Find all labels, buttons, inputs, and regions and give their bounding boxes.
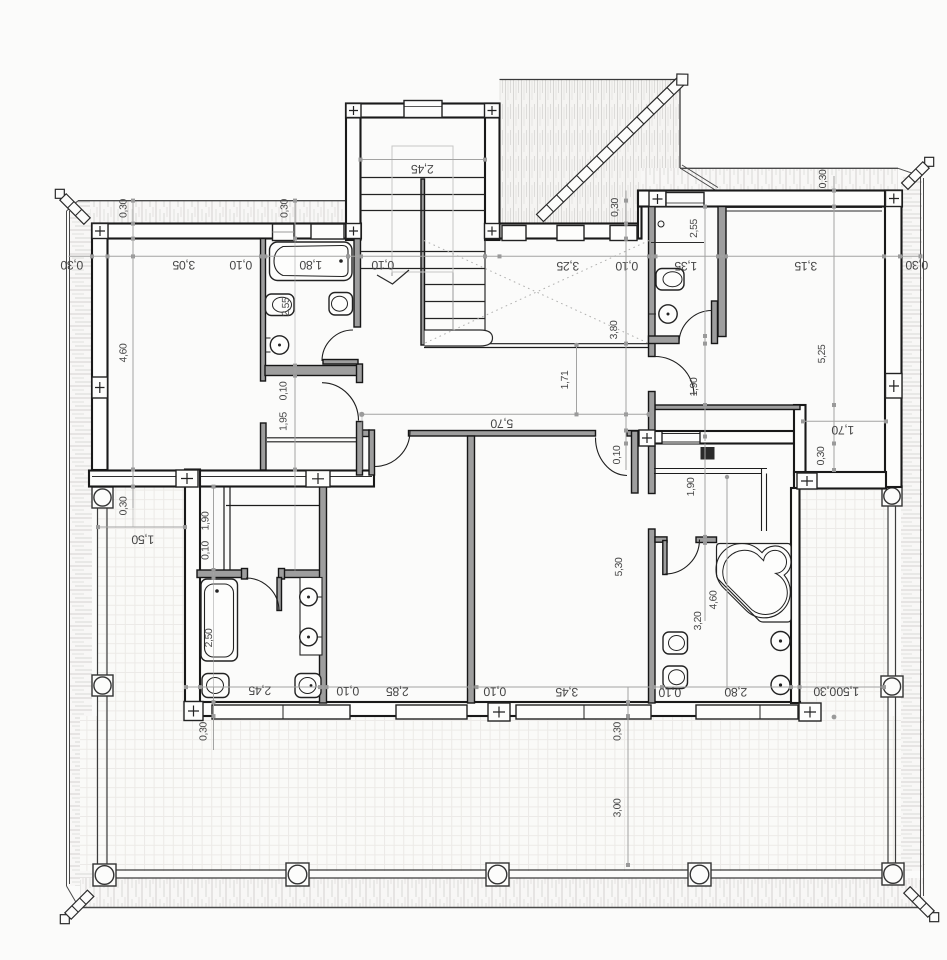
svg-text:3,80: 3,80	[609, 320, 620, 339]
svg-text:3,15: 3,15	[794, 259, 817, 273]
svg-text:2,55: 2,55	[281, 297, 292, 316]
svg-text:0,30: 0,30	[199, 722, 210, 741]
svg-text:1,80: 1,80	[299, 258, 322, 272]
svg-text:0,30: 0,30	[905, 258, 928, 272]
svg-text:5,70: 5,70	[490, 417, 513, 431]
svg-text:3,20: 3,20	[693, 611, 704, 630]
svg-text:3,05: 3,05	[172, 258, 195, 272]
svg-text:0,10: 0,10	[279, 381, 290, 400]
svg-text:0,30: 0,30	[816, 446, 827, 465]
svg-text:1,35: 1,35	[674, 259, 697, 273]
svg-text:2,55: 2,55	[689, 219, 700, 238]
svg-text:0,10: 0,10	[483, 685, 506, 699]
svg-text:1,50: 1,50	[131, 533, 154, 547]
svg-text:0,30: 0,30	[818, 169, 829, 188]
svg-text:1,50: 1,50	[836, 685, 859, 699]
svg-text:5,25: 5,25	[817, 344, 828, 363]
svg-text:1,90: 1,90	[201, 511, 212, 530]
svg-text:0,30: 0,30	[280, 199, 291, 218]
svg-text:0,10: 0,10	[371, 258, 394, 272]
svg-text:0,10: 0,10	[229, 258, 252, 272]
svg-text:2,45: 2,45	[411, 162, 434, 176]
svg-text:0,30: 0,30	[613, 722, 624, 741]
svg-text:3,00: 3,00	[613, 798, 624, 817]
svg-text:0,10: 0,10	[658, 686, 681, 700]
svg-text:1,71: 1,71	[560, 370, 571, 389]
svg-text:1,90: 1,90	[686, 477, 697, 496]
svg-text:0,10: 0,10	[336, 684, 359, 698]
svg-text:5,30: 5,30	[614, 557, 625, 576]
svg-text:3,45: 3,45	[555, 685, 578, 699]
svg-text:4,60: 4,60	[709, 590, 720, 609]
svg-text:0,30: 0,30	[610, 198, 621, 217]
svg-text:1,70: 1,70	[831, 423, 854, 437]
svg-text:0,10: 0,10	[201, 541, 212, 560]
svg-text:4,60: 4,60	[119, 343, 130, 362]
svg-text:2,45: 2,45	[248, 684, 271, 698]
svg-text:0,30: 0,30	[119, 496, 130, 515]
svg-text:0,10: 0,10	[615, 259, 638, 273]
svg-text:0,30: 0,30	[813, 685, 836, 699]
svg-text:3,25: 3,25	[556, 259, 579, 273]
svg-text:2,85: 2,85	[386, 685, 409, 699]
svg-text:0,30: 0,30	[60, 258, 83, 272]
svg-text:2,80: 2,80	[724, 685, 747, 699]
svg-text:0,30: 0,30	[119, 199, 130, 218]
svg-text:1,90: 1,90	[689, 377, 700, 396]
svg-text:0,10: 0,10	[612, 445, 623, 464]
svg-text:1,95: 1,95	[279, 412, 290, 431]
